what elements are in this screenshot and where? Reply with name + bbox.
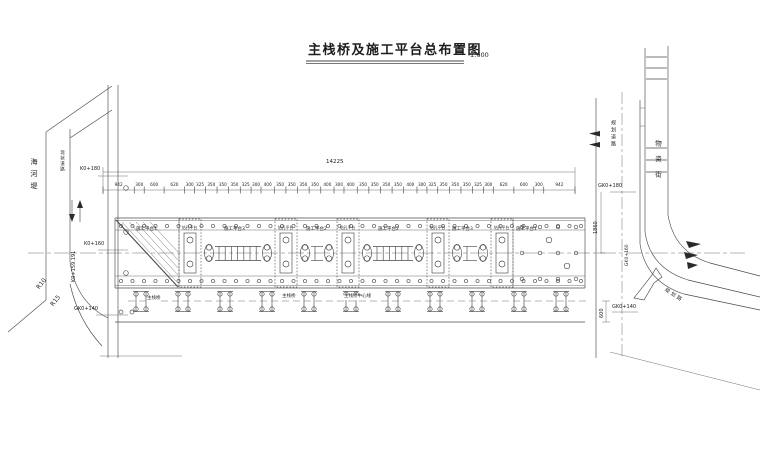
- dim-chain-value: 350: [276, 182, 284, 187]
- dim-chain-value: 300: [535, 182, 543, 187]
- road-label-planned: 规划道路: [610, 120, 615, 148]
- drawing-scale: 1:600: [470, 52, 489, 59]
- dim-chain-value: 600: [150, 182, 158, 187]
- dim-total-value: 14225: [326, 160, 344, 166]
- left-embankment-road: [8, 86, 182, 356]
- drill-platform-label-3: 钻孔平台: [340, 226, 355, 230]
- dim-chain-value: 350: [311, 182, 319, 187]
- dim-chain-value: 942: [115, 182, 123, 187]
- left-axis-road: [96, 85, 128, 358]
- dim-chain-value: 350: [207, 182, 215, 187]
- dim-chain-value: 400: [347, 182, 355, 187]
- dim-chain-value: 350: [288, 182, 296, 187]
- dim-chain-value: 400: [264, 182, 272, 187]
- trestle-label-1: 主栈桥: [147, 297, 161, 302]
- road-label-embankment: 海河堤: [30, 158, 37, 194]
- station-k0160: K0+160: [84, 242, 104, 247]
- drawing-canvas: 9423006006203003253503503503253004003503…: [0, 0, 760, 457]
- drawing-title: 主栈桥及施工平台总布置图: [308, 44, 482, 57]
- dim-chain-value: 300: [335, 182, 343, 187]
- main-deck: [115, 218, 585, 322]
- dim-total-line: [103, 167, 575, 194]
- dim-chain-value: 300: [135, 182, 143, 187]
- platform-label-3b: 施工平台3: [452, 228, 473, 233]
- trestle-centerline-label: 主栈桥中心线: [344, 295, 371, 300]
- dim-chain-value: 300: [484, 182, 492, 187]
- dim-chain-value: 300: [418, 182, 426, 187]
- dim-chain-value: 325: [242, 182, 250, 187]
- dim-chain-value: 350: [371, 182, 379, 187]
- dim-chain-value: 325: [196, 182, 204, 187]
- dim-chain-value: 942: [555, 182, 563, 187]
- dim-chain-value: 350: [230, 182, 238, 187]
- title-underline: [306, 61, 464, 64]
- dim-chain-value: 325: [474, 182, 482, 187]
- platform-label-3a: 施工平台3: [224, 228, 245, 233]
- dim-chain-value: 350: [463, 182, 471, 187]
- dim-chain-value: 350: [382, 182, 390, 187]
- platform-label-2a: 施工平台2: [306, 228, 327, 233]
- dim-chain-value: 350: [394, 182, 402, 187]
- platform-label-1a: 施工平台1: [136, 228, 157, 233]
- dim-chain-value: 300: [252, 182, 260, 187]
- station-k0180: K0+180: [80, 167, 100, 172]
- right-street-road: [610, 46, 760, 390]
- dim-chain-value: 350: [451, 182, 459, 187]
- dim-chain-value: 400: [406, 182, 414, 187]
- dim-trestle-offset: 600: [600, 308, 605, 318]
- platform-label-2b: 施工平台2: [378, 228, 399, 233]
- dim-chain-value: 350: [299, 182, 307, 187]
- dim-chain-value: 620: [500, 182, 508, 187]
- drill-platform-label-5: 钻孔平台: [494, 226, 509, 230]
- station-gk0160: GK0+160: [626, 244, 631, 266]
- dim-chain-value: 350: [219, 182, 227, 187]
- drill-platform-label-4: 钻孔平台: [430, 226, 445, 230]
- dim-chain-value: 300: [186, 182, 194, 187]
- road-label-street: 物资街: [654, 140, 661, 187]
- dim-bridge-width: 1860: [594, 221, 599, 234]
- station-gk0140-right: GK0+140: [612, 305, 636, 310]
- road-label-existing: 现状道路: [59, 150, 64, 172]
- dim-chain-value: 325: [428, 182, 436, 187]
- traffic-arrow-icons-left: [69, 200, 83, 222]
- dim-chain-value: 400: [323, 182, 331, 187]
- dim-chain-value: 600: [520, 182, 528, 187]
- dim-chain-value: 350: [359, 182, 367, 187]
- dim-chain: 9423006006203003253503503503253004003503…: [103, 182, 575, 194]
- dim-chain-value: 350: [440, 182, 448, 187]
- station-chainage: K0+159.191: [72, 251, 77, 282]
- drill-platform-label-1: 钻孔平台: [182, 226, 197, 230]
- station-gk0140-left: GK0+140: [74, 307, 98, 312]
- station-gk0180: GK0+180: [598, 184, 622, 189]
- platform-label-1b: 施工平台1: [516, 228, 537, 233]
- dim-chain-value: 620: [170, 182, 178, 187]
- drill-platform-label-2: 钻孔平台: [278, 226, 293, 230]
- trestle-label-2: 主栈桥: [282, 295, 296, 300]
